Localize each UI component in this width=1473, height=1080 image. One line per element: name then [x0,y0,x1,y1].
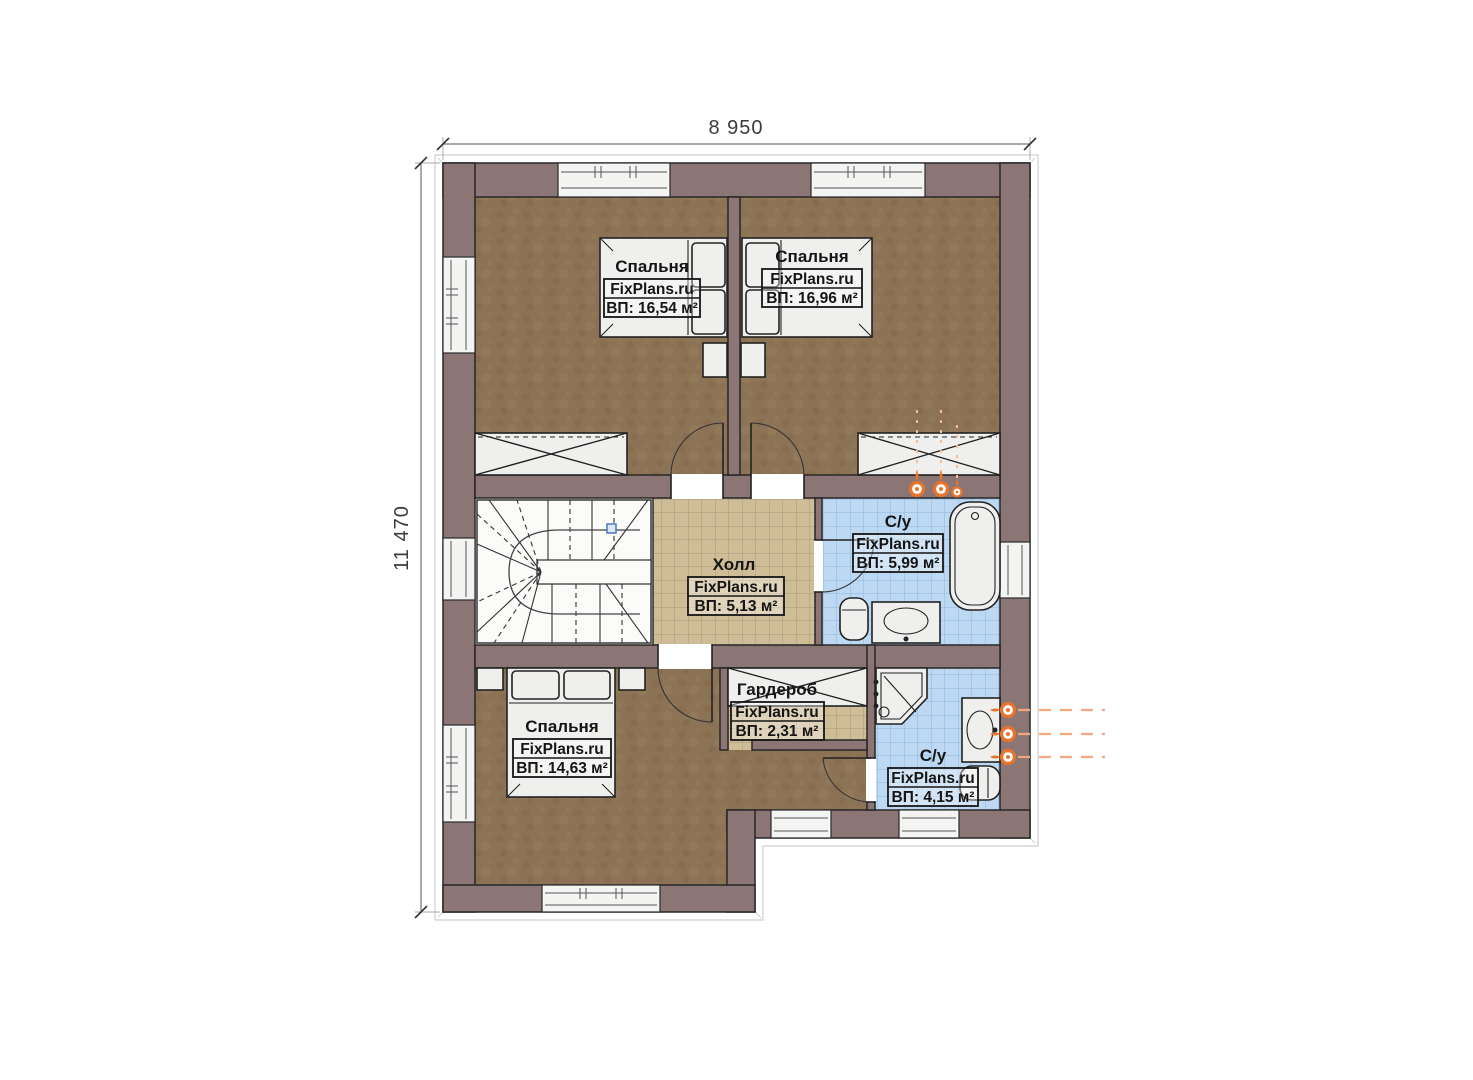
nightstand [741,343,765,377]
nightstand [477,668,503,690]
radiators-bath2 [990,704,1105,764]
floor-plan-canvas: Спальня FixPlans.ru ВП: 16,54 м² Спальня… [0,0,1473,1080]
room-area: ВП: 16,54 м² [606,300,698,317]
dimension-height: 11 470 [391,157,440,918]
floor-plan: Спальня FixPlans.ru ВП: 16,54 м² Спальня… [0,0,1473,1080]
room-name: Спальня [525,717,598,736]
room-area: ВП: 16,96 м² [766,290,858,307]
label-wardrobe: Гардероб FixPlans.ru ВП: 2,31 м² [731,680,824,740]
staircase [477,500,651,643]
fixplans-brand-label: FixPlans.ru [520,741,604,758]
room-area: ВП: 4,15 м² [892,789,975,806]
bathtub [950,502,1000,610]
toilet-bath1 [840,598,868,640]
sink-vanity-bath2 [962,698,1000,762]
wall-wardrobe-left [720,668,728,750]
dimension-height-value: 11 470 [391,505,413,571]
fixplans-brand-label: FixPlans.ru [694,579,778,596]
window-bottom-bath2 [899,810,959,838]
closet-bedroom2 [858,433,1000,475]
wall-mid-lower [475,645,1000,668]
room-area: ВП: 5,99 м² [857,555,940,572]
fixplans-brand-label: FixPlans.ru [610,281,694,298]
window-left-bedroom1 [443,257,475,353]
stair-marker [607,524,616,533]
room-name: Спальня [775,247,848,266]
label-bedroom1: Спальня FixPlans.ru ВП: 16,54 м² [604,257,700,317]
window-bottom-corridor [771,810,831,838]
nightstand [703,343,727,377]
window-left-stairs [443,538,475,600]
window-left-bedroom3 [443,725,475,822]
fixplans-brand-label: FixPlans.ru [735,704,819,721]
label-bedroom2: Спальня FixPlans.ru ВП: 16,96 м² [762,247,862,307]
dimension-width: 8 950 [437,117,1036,160]
room-name: Гардероб [737,680,817,699]
fixplans-brand-label: FixPlans.ru [770,271,854,288]
room-area: ВП: 2,31 м² [736,723,819,740]
wall-bedroom-partition [728,197,740,475]
window-right-bath1 [1000,542,1030,598]
wall-wardrobe-bottom [752,740,867,750]
sink-vanity-bath1 [872,602,940,643]
window-bottom-bedroom3 [542,885,660,912]
stair-landing [537,560,651,584]
room-name: С/у [885,512,912,531]
label-bedroom3: Спальня FixPlans.ru ВП: 14,63 м² [513,717,611,777]
fixplans-brand-label: FixPlans.ru [856,536,940,553]
dimension-width-value: 8 950 [708,117,763,139]
nightstand [619,668,645,690]
room-area: ВП: 14,63 м² [516,760,608,777]
window-top-left [558,163,670,197]
room-name: С/у [920,746,947,765]
wall-top [443,163,1030,197]
room-name: Холл [713,555,756,574]
closet-bedroom1 [475,433,627,475]
room-name: Спальня [615,257,688,276]
room-area: ВП: 5,13 м² [695,598,778,615]
fixplans-brand-label: FixPlans.ru [891,770,975,787]
window-top-right [811,163,925,197]
